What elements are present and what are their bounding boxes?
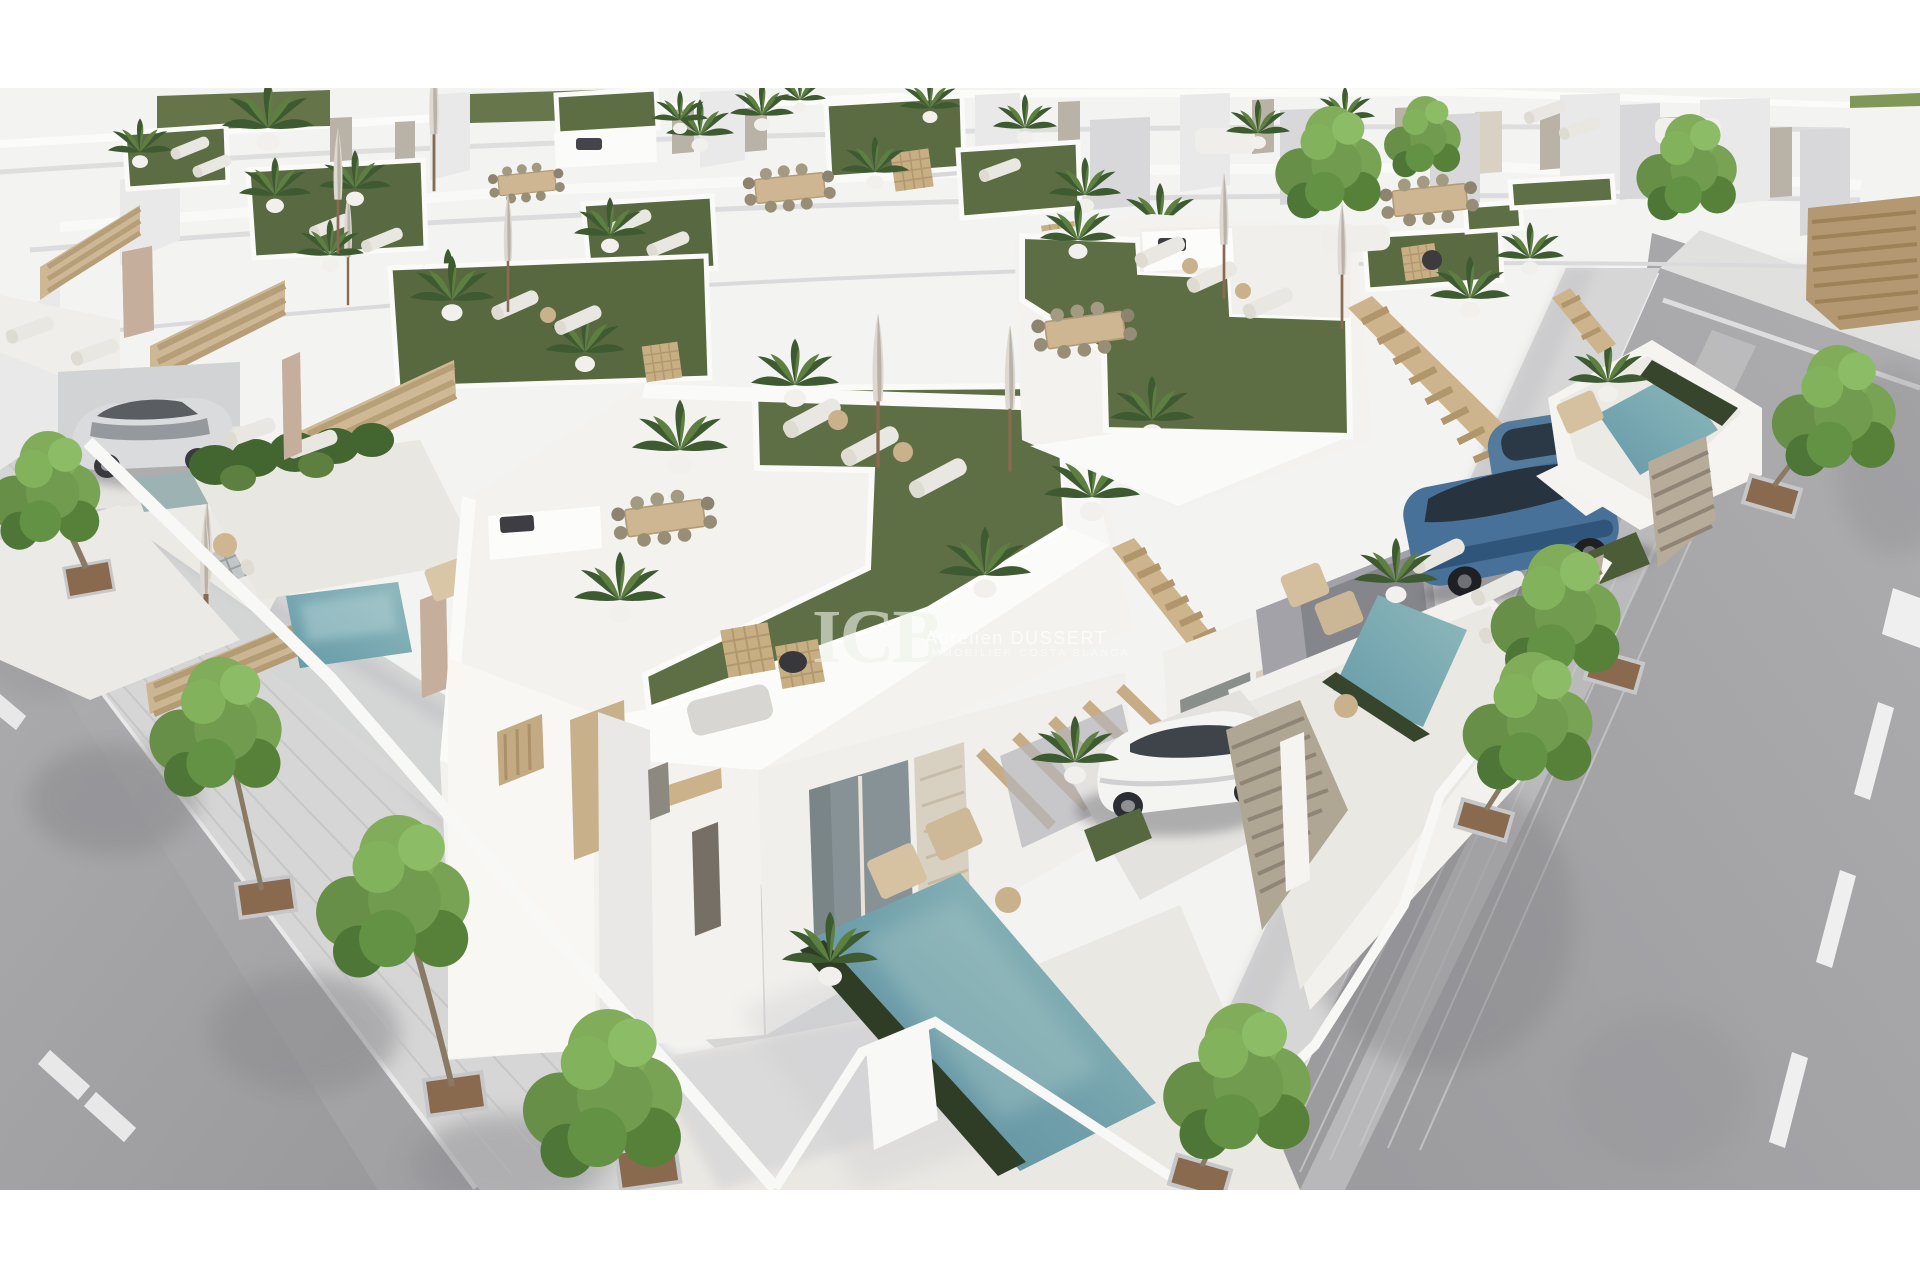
svg-text:Aurélien DUSSERT: Aurélien DUSSERT xyxy=(925,628,1107,648)
svg-text:ICB: ICB xyxy=(812,595,941,679)
svg-text:IMMOBILIER COSTA BLANCA: IMMOBILIER COSTA BLANCA xyxy=(926,647,1130,659)
